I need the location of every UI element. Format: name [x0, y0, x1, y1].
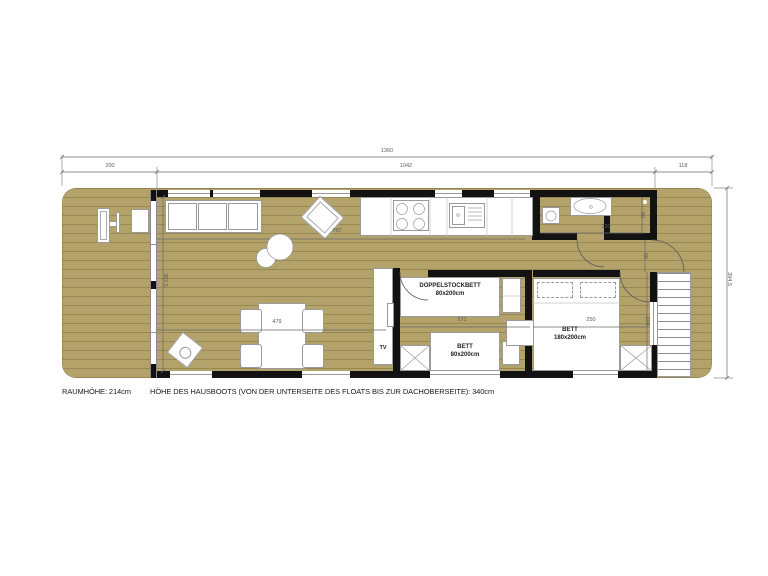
tv-label: TV — [374, 345, 392, 351]
tray-arm — [116, 212, 120, 233]
single-bed-label-line1: BETT — [430, 344, 500, 352]
bunk-bed-label: DOPPELSTOCKBETT 80x200cm — [405, 283, 495, 298]
stairs — [657, 272, 691, 377]
wall-top — [260, 190, 312, 197]
glass-divider — [151, 244, 156, 245]
wall-bottom — [212, 371, 302, 378]
window — [168, 190, 210, 197]
double-bed-label-line2: 180x200cm — [527, 335, 613, 343]
wall-storage-bottom — [604, 233, 652, 240]
chair — [302, 344, 324, 368]
dining-table — [258, 303, 306, 369]
dim-master-room: 250 — [579, 316, 603, 324]
wall-bottom — [500, 371, 573, 378]
window — [573, 371, 618, 378]
glass-mullion — [151, 281, 156, 289]
single-bed-label: BETT 80x200cm — [430, 344, 500, 359]
wall-cap — [151, 190, 156, 201]
cooktop — [393, 200, 429, 231]
dim-interior-width: 362,5 — [161, 265, 169, 295]
dim-living-length: 767 — [325, 227, 349, 235]
toilet — [542, 207, 560, 224]
bunk-bed-label-line1: DOPPELSTOCKBETT — [405, 283, 495, 291]
pillow — [537, 282, 573, 298]
dim-bathroom: 230 — [594, 223, 618, 231]
wall-living-bedroom — [393, 268, 400, 372]
sofa-seat — [198, 203, 227, 230]
dim-dining-length: 479 — [265, 318, 289, 326]
wall-cap — [151, 364, 156, 378]
note-room-height: RAUMHÖHE: 214cm — [62, 387, 131, 396]
dim-cabin-length: 1042 — [388, 162, 424, 170]
sofa-seat — [228, 203, 258, 230]
wall-top — [530, 190, 657, 197]
double-bed-label: BETT 180x200cm — [527, 327, 613, 342]
sofa-seat — [168, 203, 197, 230]
note-boat-height: HÖHE DES HAUSBOOTS (VON DER UNTERSEITE D… — [150, 387, 494, 396]
wall-top — [350, 190, 435, 197]
kitchen-counter — [360, 197, 533, 236]
chair — [240, 309, 262, 333]
wall-master-top — [533, 270, 620, 277]
chair — [302, 309, 324, 333]
chair — [240, 344, 262, 368]
dim-front-deck: 200 — [94, 162, 126, 170]
bunk-bed-label-line2: 80x200cm — [405, 291, 495, 299]
wardrobe — [400, 345, 430, 371]
lounger-pad — [100, 211, 107, 240]
glass-sliding-wall — [150, 190, 157, 378]
window — [430, 371, 500, 378]
vanity-counter — [570, 197, 612, 216]
wall-bunkroom-top — [428, 270, 525, 277]
floorplan-canvas: 1360 200 1042 118 394,5 362,5 767 479 27… — [0, 0, 768, 576]
glass-divider — [151, 332, 156, 333]
window — [494, 190, 530, 197]
wall-bath-bottom — [532, 233, 577, 240]
dim-aft-deck: 118 — [667, 162, 699, 170]
single-bed-label-line2: 80x200cm — [430, 352, 500, 360]
window — [650, 302, 657, 345]
dim-storage-depth: 60 — [638, 203, 646, 227]
wall-right — [650, 272, 657, 302]
window — [435, 190, 462, 197]
dim-total-length: 1360 — [371, 147, 403, 155]
wall-top — [462, 190, 494, 197]
tv-screen — [387, 303, 394, 327]
window — [312, 190, 350, 197]
dim-bunk-room: 271 — [450, 316, 474, 324]
window — [302, 371, 350, 378]
dim-stair-length: 204 — [643, 309, 651, 333]
double-bed-label-line1: BETT — [527, 327, 613, 335]
stove-flue — [177, 344, 194, 361]
window — [213, 190, 260, 197]
deck-table — [131, 209, 149, 233]
sink-basin — [452, 206, 465, 225]
bunk-shelf — [502, 278, 521, 313]
wardrobe — [620, 345, 652, 371]
dim-total-width: 394,5 — [725, 264, 733, 294]
wall-bottom — [350, 371, 430, 378]
pillow — [580, 282, 616, 298]
dim-hall-door: 66 — [641, 244, 649, 268]
window — [170, 371, 212, 378]
